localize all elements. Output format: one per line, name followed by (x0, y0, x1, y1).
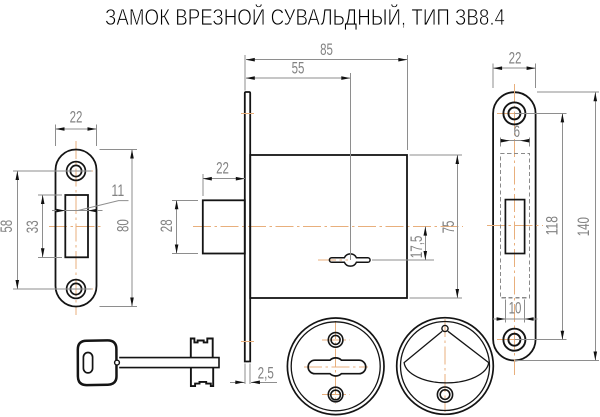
svg-text:22: 22 (70, 108, 83, 126)
svg-text:58: 58 (0, 220, 16, 233)
svg-text:118: 118 (543, 216, 561, 235)
svg-text:33: 33 (24, 220, 42, 233)
svg-text:10: 10 (509, 300, 522, 318)
svg-text:55: 55 (292, 59, 305, 77)
svg-text:140: 140 (575, 217, 593, 236)
svg-text:22: 22 (509, 50, 522, 68)
svg-text:2,5: 2,5 (258, 365, 274, 383)
svg-text:17,5: 17,5 (408, 236, 426, 259)
svg-text:28: 28 (158, 219, 176, 232)
svg-text:80: 80 (115, 219, 133, 232)
svg-text:75: 75 (440, 221, 458, 234)
svg-text:11: 11 (111, 182, 124, 200)
svg-text:85: 85 (320, 41, 333, 59)
svg-text:22: 22 (216, 159, 229, 177)
svg-text:ЗАМОК ВРЕЗНОЙ СУВАЛЬДНЫЙ, ТИП: ЗАМОК ВРЕЗНОЙ СУВАЛЬДНЫЙ, ТИП ЗВ8.4 (105, 3, 505, 30)
svg-text:6: 6 (514, 123, 520, 141)
